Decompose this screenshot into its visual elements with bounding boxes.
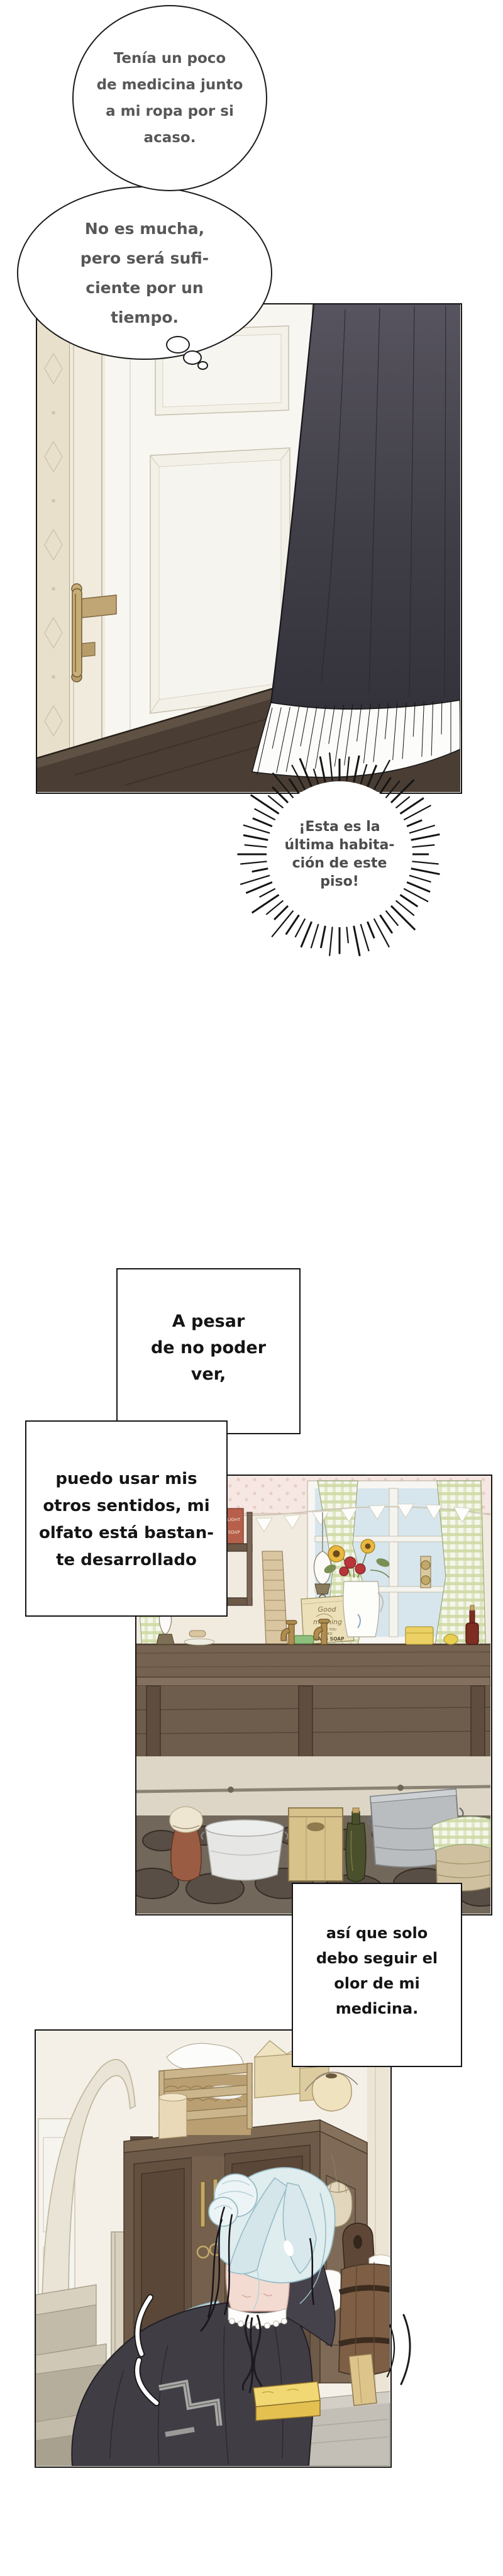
caption-box-c: así que solo debo seguir el olor de mi m… [292,1883,462,2067]
yellow-sponge [253,2382,320,2421]
covered-jar [170,1807,202,1881]
burst-line: ¡Esta es la [299,818,380,836]
door-scene-illustration [37,304,460,792]
caption-line: A pesar [118,1308,299,1335]
burst-line: piso! [320,873,359,891]
thought-trail-circle [166,336,190,354]
burst-line: última habita- [285,836,395,854]
caption-line: debo seguir el [293,1946,461,1971]
bubble-line: Tenía un poco [114,45,226,72]
wooden-crate [289,1808,343,1881]
counter [136,1644,490,1677]
caption-line: olor de mi [293,1971,461,1996]
caption-line: así que solo [293,1921,461,1946]
caption-line: puedo usar mis [26,1466,226,1493]
caption-line: medicina. [293,1996,461,2021]
bubble-line: de medicina junto [97,72,243,98]
panel-room-scene [35,2029,392,2468]
bubble-line: No es mucha, [85,214,204,243]
bubble-line: ciente por un [86,273,203,303]
thought-trail-circle [197,361,208,370]
wash-basin [201,1820,287,1880]
svg-text:Good: Good [318,1605,337,1614]
burst-line: ción de este [292,854,387,873]
caption-line: te desarrollado [26,1547,226,1574]
burst-bubble: ¡Esta es la última habita- ción de este … [234,749,445,960]
thought-bubble-1: Tenía un poco de medicina junto a mi rop… [72,5,267,191]
panel-door-scene [36,303,462,794]
door-frame [70,304,105,792]
room-illustration [36,2031,390,2466]
svg-text:SOAP: SOAP [228,1530,240,1535]
bubble-line: acaso. [144,125,196,151]
bubble-line: a mi ropa por si [106,98,234,125]
svg-text:LIGHT: LIGHT [228,1517,241,1522]
wood-plank [349,2354,377,2406]
caption-box-b: puedo usar mis otros sentidos, mi olfato… [25,1420,228,1617]
burst-text: ¡Esta es la última habita- ción de este … [234,749,445,960]
sniff-motion-icon [377,2310,434,2404]
caption-line: olfato está bastan- [26,1520,226,1547]
wallpaper-strip [37,304,70,792]
comic-page: Tenía un poco de medicina junto a mi rop… [0,0,503,2576]
bubble-line: tiempo. [111,303,179,332]
caption-line: de no poder [118,1335,299,1361]
bubble-line: pero será sufi- [80,243,209,273]
caption-box-a: A pesar de no poder ver, [116,1268,301,1434]
caption-line: otros sentidos, mi [26,1493,226,1520]
thought-bubble-2: No es mucha, pero será sufi- ciente por … [17,186,272,360]
caption-line: ver, [118,1361,299,1388]
laundry-basket [432,1817,490,1891]
